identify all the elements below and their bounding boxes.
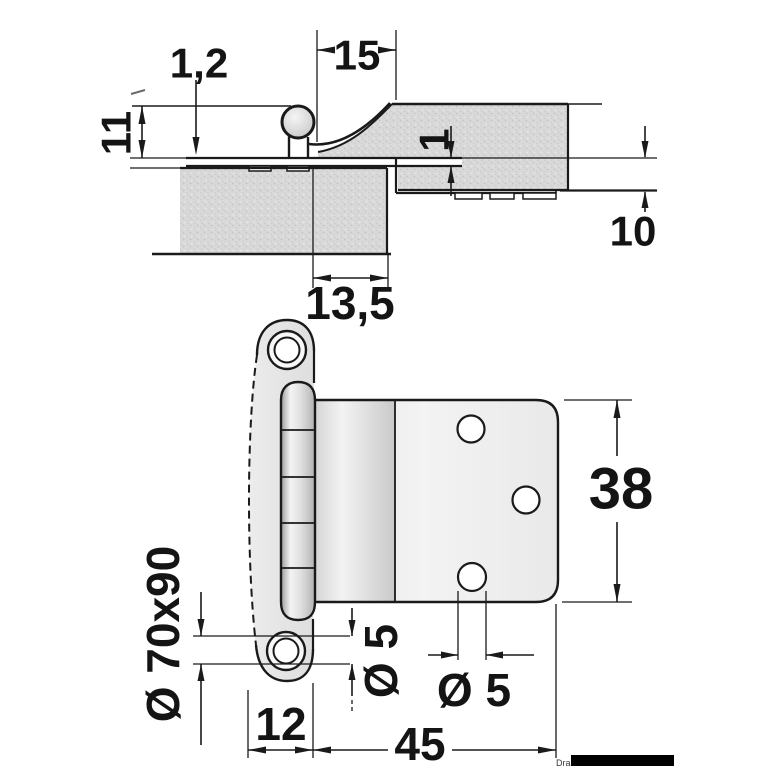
dim7090-arrow-bottom xyxy=(198,664,205,681)
dim15-arrow-right xyxy=(378,47,396,54)
hinge-drawing: 1,2 15 11 1 10 13,5 xyxy=(0,0,768,768)
frame-panel-section xyxy=(180,168,387,253)
section-view: 1,2 15 11 1 10 13,5 xyxy=(93,30,658,329)
flange-tab-2 xyxy=(490,193,514,199)
wing-hole-bottom-inner xyxy=(274,639,299,664)
dim45-arrow-right xyxy=(538,747,556,754)
dim-label-plate-width: 45 xyxy=(394,718,445,768)
dim-label-wing-width: 12 xyxy=(255,698,306,750)
dim11-arrow-bottom xyxy=(139,140,146,158)
plate-hole-bottom xyxy=(458,563,486,591)
wing-hole-top-inner xyxy=(275,338,300,363)
dim-label-frame-thickness: 11 xyxy=(93,111,140,155)
watermark-redaction-bar xyxy=(571,755,674,766)
dim-label-plate-hole: Ø 5 xyxy=(437,664,511,716)
dim-label-edge-distance: 13,5 xyxy=(305,277,395,329)
dim45-arrow-left xyxy=(313,747,331,754)
dim10-arrow-bottom xyxy=(642,191,649,208)
leader12-arrow xyxy=(193,137,200,155)
dim11-arrow-top xyxy=(139,106,146,124)
dimO5p-arrow-left xyxy=(441,652,458,659)
dim10-arrow-top xyxy=(642,141,649,158)
dim-label-knuckle-offset: 15 xyxy=(334,32,381,79)
plate-hole-middle xyxy=(513,487,540,514)
dim-label-leaf-thickness: 1,2 xyxy=(170,40,228,87)
hinge-pin-barrel xyxy=(282,106,314,138)
plate-hole-top xyxy=(458,416,485,443)
dim-label-wing-size: Ø 70x90 xyxy=(137,546,189,722)
dim-label-recess-depth: 1 xyxy=(411,128,458,151)
dim-label-plate-height: 38 xyxy=(589,457,654,522)
dimO5p-arrow-right xyxy=(486,652,503,659)
plate-fold-strip xyxy=(314,400,395,602)
break-mark xyxy=(131,90,145,94)
dim38-arrow-top xyxy=(614,400,621,418)
front-view: 38 Ø 70x90 Ø 5 12 45 Ø 5 xyxy=(137,320,653,768)
dim7090-arrow-top xyxy=(198,619,205,636)
dim-label-door-depth: 10 xyxy=(610,208,657,255)
knuckle-body xyxy=(281,382,315,620)
dim-label-wing-hole: Ø 5 xyxy=(355,624,407,698)
dim38-arrow-bottom xyxy=(614,584,621,602)
technical-drawing-page: 1,2 15 11 1 10 13,5 xyxy=(0,0,768,768)
watermark-text: Dra xyxy=(556,758,571,768)
flange-tab-3 xyxy=(523,193,556,199)
watermark: Dra xyxy=(556,755,674,768)
dim15-arrow-left xyxy=(317,47,335,54)
flange-tab-1 xyxy=(455,193,482,199)
